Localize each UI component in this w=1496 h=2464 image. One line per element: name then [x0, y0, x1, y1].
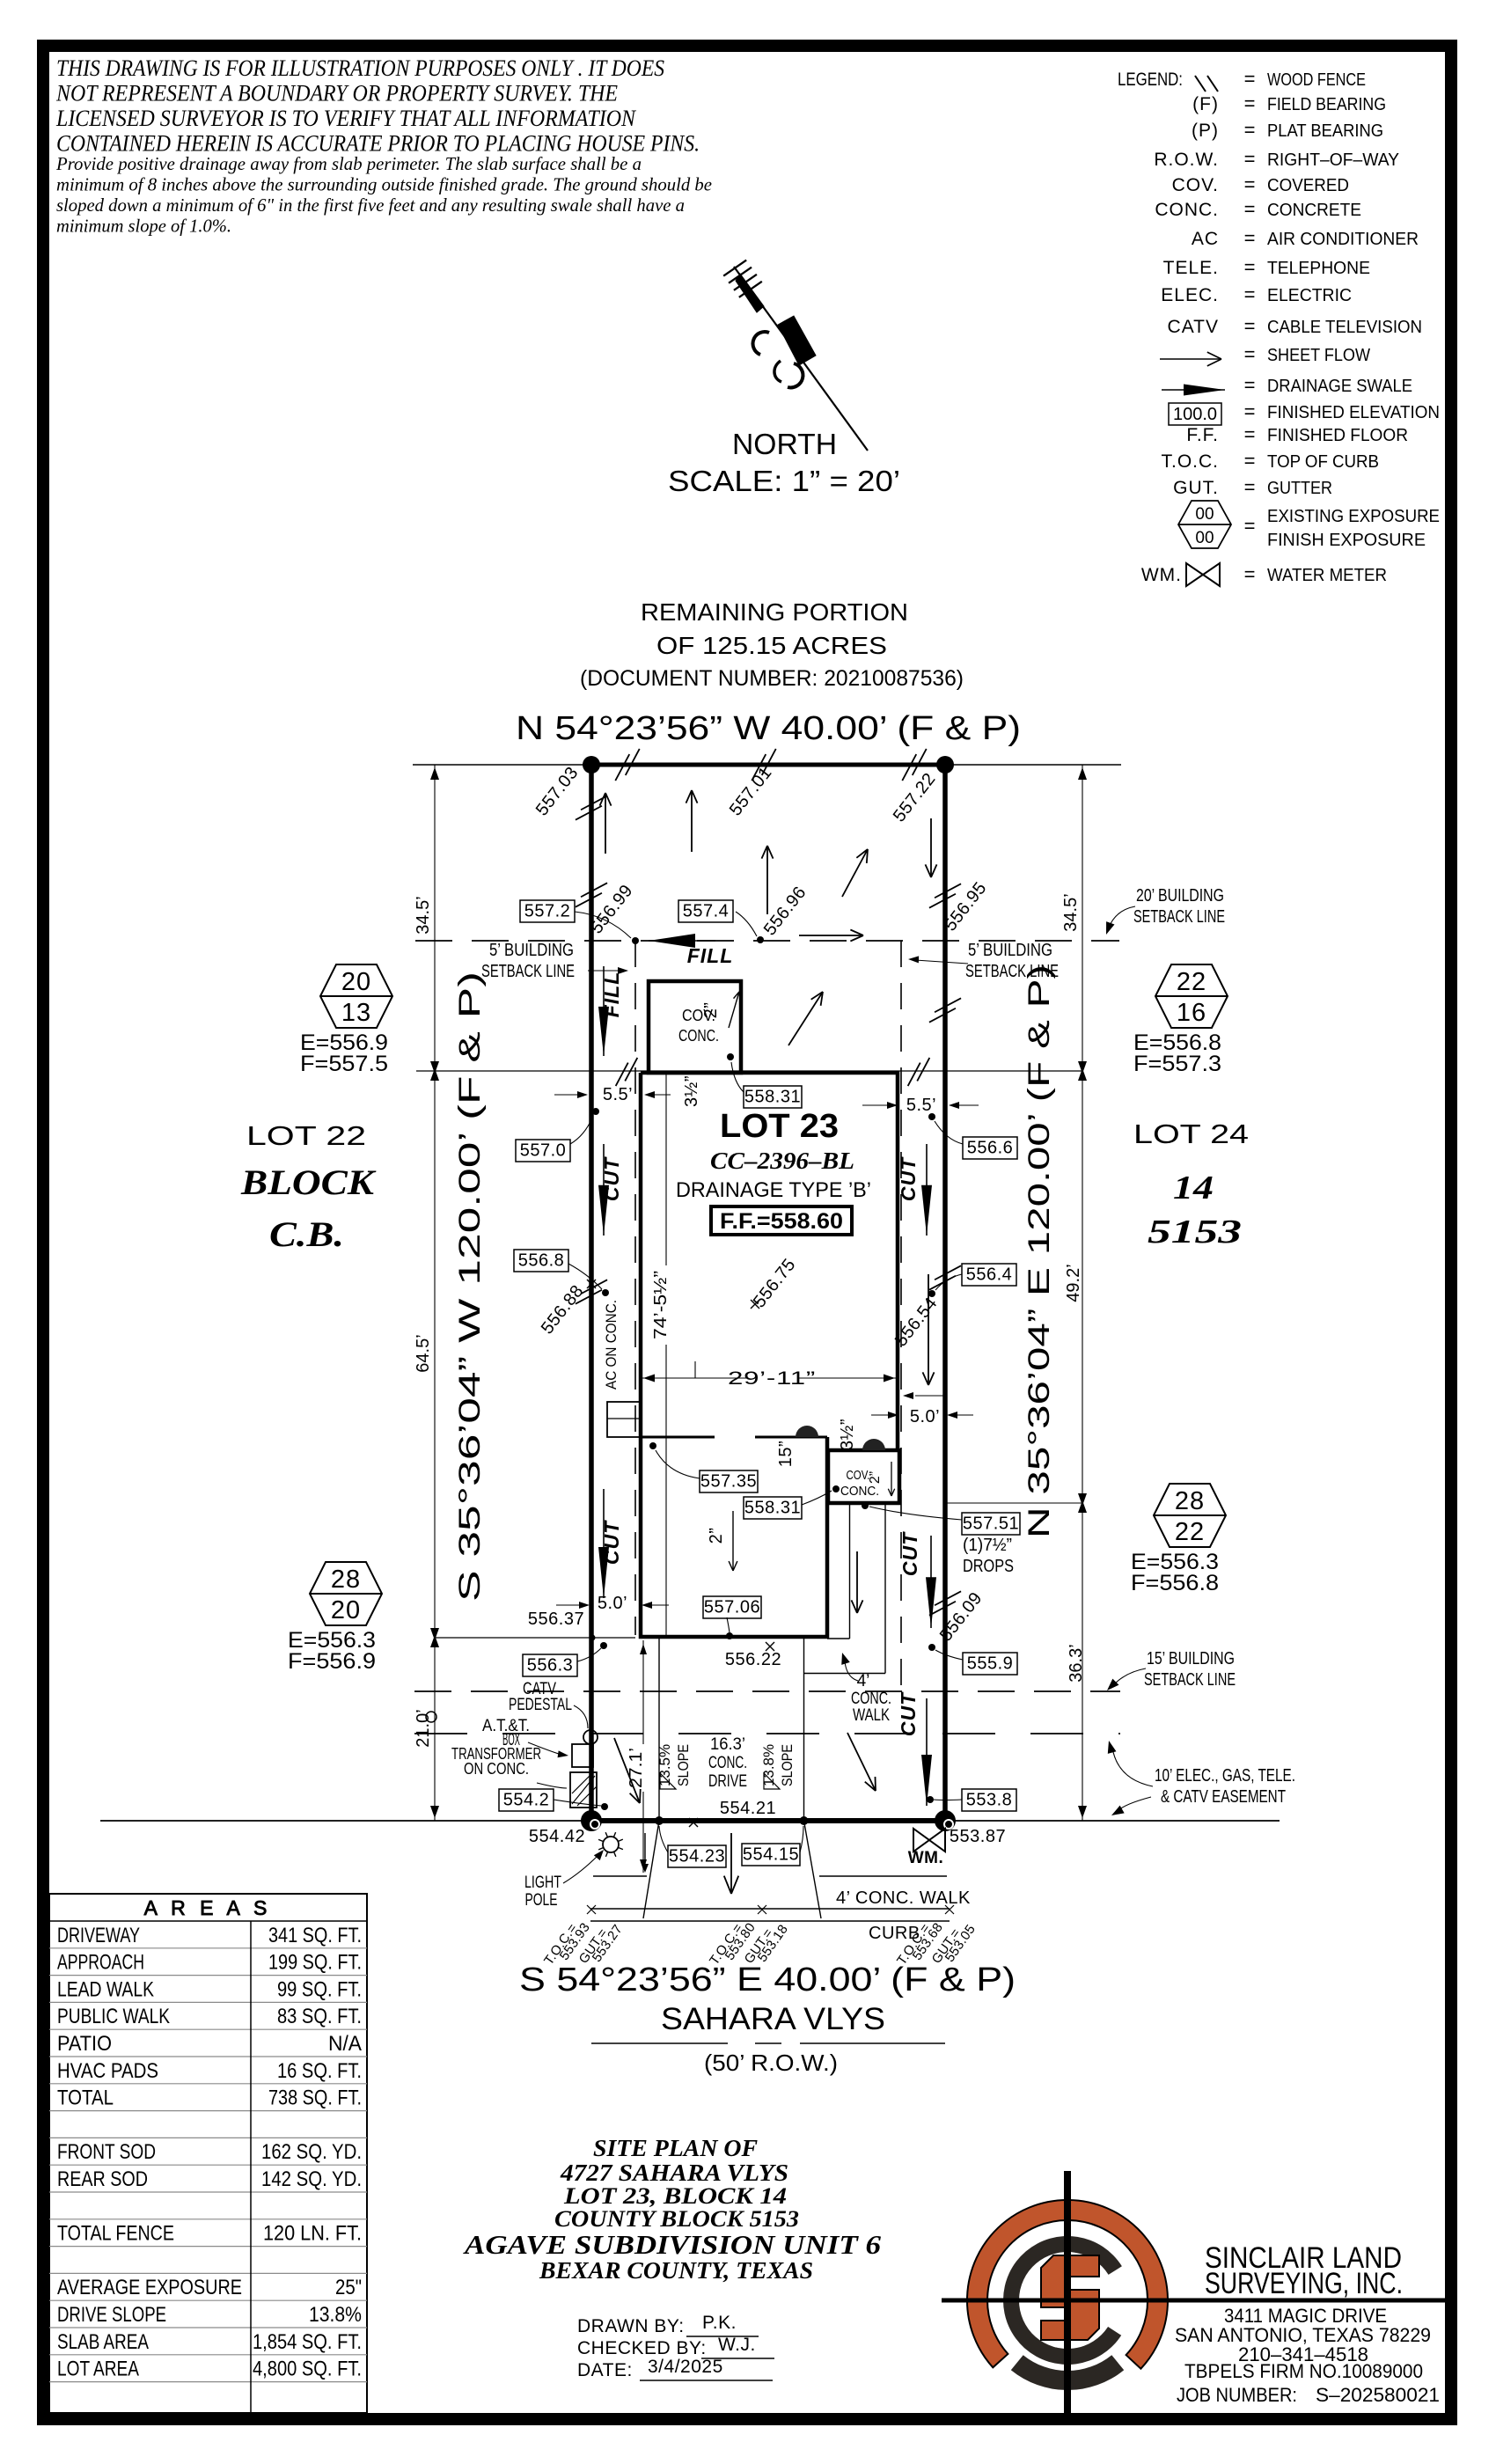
svg-text:LEAD WALK: LEAD WALK [57, 1977, 154, 2001]
svg-text:NORTH: NORTH [732, 428, 837, 460]
svg-text:WALK: WALK [853, 1706, 890, 1725]
svg-text:CUT: CUT [898, 1531, 921, 1576]
svg-text:5.0’: 5.0’ [598, 1594, 627, 1613]
svg-text:F=557.3: F=557.3 [1133, 1052, 1221, 1076]
svg-text:16.3’: 16.3’ [710, 1735, 745, 1754]
svg-text:AGAVE SUBDIVISION UNIT 6: AGAVE SUBDIVISION UNIT 6 [463, 2229, 882, 2260]
svg-text:556.4: 556.4 [966, 1265, 1013, 1285]
svg-text:=: = [1244, 315, 1256, 337]
svg-text:PEDESTAL: PEDESTAL [509, 1696, 572, 1714]
svg-text:TBPELS FIRM NO.10089000: TBPELS FIRM NO.10089000 [1184, 2360, 1423, 2382]
svg-text:=: = [1244, 515, 1256, 537]
svg-text:GUTTER: GUTTER [1267, 478, 1332, 498]
svg-text:558.31: 558.31 [744, 1088, 801, 1107]
svg-text:ELEC.: ELEC. [1161, 285, 1219, 305]
svg-text:13: 13 [341, 999, 371, 1027]
svg-text:BEXAR COUNTY, TEXAS: BEXAR COUNTY, TEXAS [539, 2257, 813, 2284]
svg-text:CONC.: CONC. [840, 1484, 879, 1499]
svg-text:=: = [1244, 92, 1256, 114]
svg-text:13.8%: 13.8% [309, 2303, 362, 2327]
svg-text:00: 00 [1195, 529, 1214, 547]
svg-text:POLE: POLE [525, 1891, 558, 1910]
svg-text:=: = [1244, 374, 1256, 396]
svg-text:557.35: 557.35 [700, 1472, 757, 1492]
svg-text:GUT.: GUT. [1173, 478, 1219, 498]
svg-text:28: 28 [331, 1566, 361, 1594]
svg-text:100.0: 100.0 [1173, 405, 1217, 424]
svg-text:LIGHT: LIGHT [524, 1874, 561, 1892]
svg-text:SURVEYING, INC.: SURVEYING, INC. [1205, 2267, 1403, 2300]
svg-text:554.42: 554.42 [529, 1827, 585, 1846]
svg-text:C.B.: C.B. [269, 1214, 344, 1254]
svg-text:SAHARA VLYS: SAHARA VLYS [661, 2002, 885, 2036]
svg-text:28: 28 [1175, 1487, 1205, 1515]
svg-text:LICENSED SURVEYOR IS TO VERIFY: LICENSED SURVEYOR IS TO VERIFY THAT ALL … [55, 106, 636, 131]
svg-text:13.8%: 13.8% [760, 1744, 777, 1786]
svg-text:& CATV EASEMENT: & CATV EASEMENT [1161, 1787, 1286, 1807]
svg-text:4,800 SQ. FT.: 4,800 SQ. FT. [253, 2358, 362, 2381]
svg-text:2”: 2” [868, 1471, 883, 1484]
svg-text:=: = [1244, 119, 1256, 141]
svg-text:556.22: 556.22 [725, 1650, 781, 1669]
svg-text:=: = [1244, 450, 1256, 472]
svg-text:=: = [1244, 283, 1256, 305]
svg-text:557.06: 557.06 [704, 1598, 760, 1617]
svg-text:AC ON CONC.: AC ON CONC. [603, 1300, 620, 1390]
svg-text:554.15: 554.15 [743, 1845, 799, 1865]
svg-text:2”: 2” [707, 1528, 726, 1544]
svg-text:COUNTY BLOCK 5153: COUNTY BLOCK 5153 [554, 2206, 799, 2232]
svg-text:74’-5½”: 74’-5½” [651, 1271, 671, 1339]
svg-text:556.3: 556.3 [527, 1656, 574, 1676]
svg-text:N 54°23’56” W 40.00’ (F & P): N 54°23’56” W 40.00’ (F & P) [516, 710, 1021, 747]
svg-text:16: 16 [1177, 999, 1206, 1027]
svg-text:DRAINAGE SWALE: DRAINAGE SWALE [1267, 376, 1412, 396]
svg-text:15”: 15” [776, 1441, 796, 1467]
svg-text:COV.: COV. [847, 1468, 870, 1483]
svg-text:4’ CONC. WALK: 4’ CONC. WALK [836, 1888, 971, 1908]
svg-text:F=557.5: F=557.5 [300, 1052, 388, 1076]
svg-text:F.F.: F.F. [1186, 425, 1219, 445]
svg-text:LEGEND:: LEGEND: [1118, 70, 1183, 90]
svg-text:SETBACK LINE: SETBACK LINE [1133, 907, 1225, 927]
svg-text:N 35°36’04” E 120.00’ (F &: N 35°36’04” E 120.00’ (F & P) [1023, 964, 1056, 1538]
svg-text:minimum slope of 1.0%.: minimum slope of 1.0%. [56, 216, 231, 237]
svg-text:27.1’: 27.1’ [627, 1748, 646, 1788]
svg-text:FILL: FILL [687, 944, 734, 967]
svg-text:FILL: FILL [600, 972, 623, 1018]
svg-text:(DOCUMENT NUMBER: 20210087536): (DOCUMENT NUMBER: 20210087536) [580, 666, 964, 691]
svg-text:341 SQ. FT.: 341 SQ. FT. [268, 1924, 362, 1947]
svg-text:N/A: N/A [328, 2032, 362, 2056]
svg-text:=: = [1244, 343, 1256, 365]
svg-text:15’ BUILDING: 15’ BUILDING [1147, 1649, 1235, 1668]
svg-text:PATIO: PATIO [57, 2032, 112, 2056]
svg-text:SETBACK LINE: SETBACK LINE [481, 962, 575, 981]
svg-text:557.0: 557.0 [520, 1141, 567, 1161]
svg-text:APPROACH: APPROACH [57, 1951, 144, 1975]
svg-text:554.23: 554.23 [669, 1847, 725, 1866]
svg-text:DRIVE SLOPE: DRIVE SLOPE [57, 2303, 166, 2327]
svg-text:=: = [1244, 256, 1256, 278]
svg-text:553.8: 553.8 [966, 1791, 1013, 1810]
svg-text:=: = [1244, 173, 1256, 195]
svg-text:34.5’: 34.5’ [414, 896, 433, 934]
svg-text:CONCRETE: CONCRETE [1267, 200, 1361, 220]
svg-text:(F): (F) [1192, 94, 1219, 114]
svg-text:FINISHED FLOOR: FINISHED FLOOR [1267, 425, 1408, 445]
svg-text:AC: AC [1192, 229, 1219, 249]
svg-text:558.31: 558.31 [744, 1499, 801, 1518]
svg-text:120 LN. FT.: 120 LN. FT. [263, 2222, 362, 2246]
svg-text:5153: 5153 [1148, 1214, 1242, 1250]
svg-text:SETBACK LINE: SETBACK LINE [1144, 1670, 1236, 1690]
svg-text:WM.: WM. [1141, 565, 1182, 585]
svg-text:553.87: 553.87 [950, 1827, 1006, 1846]
svg-text:557.51: 557.51 [963, 1514, 1019, 1534]
svg-text:=: = [1244, 68, 1256, 90]
svg-text:556.8: 556.8 [518, 1251, 565, 1271]
svg-text:557.4: 557.4 [683, 902, 730, 921]
svg-text:F=556.9: F=556.9 [288, 1649, 376, 1674]
svg-text:sloped down a minimum of 6" in: sloped down a minimum of 6" in the first… [56, 194, 685, 216]
svg-text:S–202580021: S–202580021 [1316, 2384, 1440, 2406]
svg-text:10’ ELEC., GAS, TELE.: 10’ ELEC., GAS, TELE. [1155, 1766, 1295, 1786]
svg-text:FRONT SOD: FRONT SOD [57, 2140, 156, 2164]
svg-text:W.J.: W.J. [718, 2335, 756, 2355]
svg-text:(P): (P) [1192, 121, 1219, 141]
svg-text:T.O.C.: T.O.C. [1161, 451, 1219, 472]
svg-text:3½”: 3½” [838, 1419, 857, 1450]
svg-text:13.5%: 13.5% [656, 1744, 673, 1786]
svg-text:=: = [1244, 148, 1256, 170]
svg-text:CATV: CATV [1168, 317, 1219, 337]
svg-text:DRAWN BY:: DRAWN BY: [577, 2316, 685, 2336]
svg-text:S 35°36’04” W 120.00’ (F &: S 35°36’04” W 120.00’ (F & P) [453, 972, 487, 1602]
svg-text:WATER METER: WATER METER [1267, 565, 1387, 585]
svg-text:=: = [1244, 476, 1256, 498]
svg-text:20: 20 [331, 1596, 361, 1624]
svg-text:00: 00 [1195, 505, 1214, 524]
svg-text:CUT: CUT [600, 1520, 623, 1565]
svg-text:COV.: COV. [682, 1007, 715, 1024]
svg-text:Provide positive drainage away: Provide positive drainage away from slab… [55, 153, 642, 174]
svg-text:5.0’: 5.0’ [910, 1407, 940, 1426]
svg-text:LOT 23: LOT 23 [720, 1108, 839, 1145]
svg-text:WM.: WM. [908, 1849, 944, 1867]
svg-text:SHEET FLOW: SHEET FLOW [1267, 345, 1371, 365]
svg-text:LOT 23, BLOCK 14: LOT 23, BLOCK 14 [563, 2183, 787, 2209]
svg-text:738 SQ. FT.: 738 SQ. FT. [268, 2086, 362, 2110]
svg-text:DROPS: DROPS [963, 1557, 1014, 1576]
svg-text:3/4/2025: 3/4/2025 [648, 2357, 723, 2377]
svg-text:F.F.=558.60: F.F.=558.60 [720, 1209, 843, 1234]
svg-text:F=556.8: F=556.8 [1131, 1571, 1219, 1595]
svg-text:minimum of 8 inches above the: minimum of 8 inches above the surroundin… [56, 174, 712, 195]
svg-text:20’ BUILDING: 20’ BUILDING [1136, 886, 1224, 906]
svg-text:WOOD FENCE: WOOD FENCE [1267, 70, 1366, 90]
svg-text:555.9: 555.9 [967, 1654, 1014, 1674]
svg-text:COVERED: COVERED [1267, 175, 1349, 195]
svg-text:CONC.: CONC. [851, 1690, 891, 1708]
svg-text:THIS DRAWING IS FOR ILLUSTRATI: THIS DRAWING IS FOR ILLUSTRATION PURPOSE… [56, 55, 664, 81]
svg-text:CONC.: CONC. [708, 1754, 747, 1772]
svg-text:554.2: 554.2 [503, 1791, 550, 1810]
svg-text:HVAC PADS: HVAC PADS [57, 2059, 158, 2083]
svg-text:SLOPE: SLOPE [675, 1744, 692, 1786]
svg-text:36.3’: 36.3’ [1067, 1644, 1086, 1682]
svg-text:ON CONC.: ON CONC. [464, 1760, 529, 1778]
svg-text:REMAINING PORTION: REMAINING PORTION [641, 598, 908, 626]
svg-text:(50’ R.O.W.): (50’ R.O.W.) [704, 2050, 838, 2076]
svg-text:5.5’: 5.5’ [603, 1085, 633, 1104]
svg-text:556.6: 556.6 [967, 1139, 1014, 1158]
svg-text:CABLE TELEVISION: CABLE TELEVISION [1267, 317, 1422, 337]
svg-text:=: = [1244, 227, 1256, 249]
svg-text:CC–2396–BL: CC–2396–BL [710, 1148, 854, 1174]
svg-text:PUBLIC WALK: PUBLIC WALK [57, 2005, 170, 2028]
svg-text:TOTAL FENCE: TOTAL FENCE [57, 2222, 174, 2246]
svg-text:LOT 22: LOT 22 [246, 1120, 366, 1151]
svg-text:BLOCK: BLOCK [240, 1162, 377, 1202]
svg-text:DRAINAGE TYPE ’B’: DRAINAGE TYPE ’B’ [676, 1178, 871, 1202]
svg-text:=: = [1244, 198, 1256, 220]
svg-text:CONC.: CONC. [1155, 200, 1219, 220]
svg-text:SLOPE: SLOPE [779, 1744, 796, 1786]
svg-text:49.2’: 49.2’ [1064, 1264, 1083, 1302]
svg-text:CUT: CUT [897, 1691, 920, 1736]
svg-text:=: = [1244, 400, 1256, 422]
svg-text:142 SQ. YD.: 142 SQ. YD. [261, 2167, 362, 2191]
svg-text:34.5’: 34.5’ [1061, 893, 1081, 931]
svg-text:PLAT BEARING: PLAT BEARING [1267, 121, 1383, 141]
svg-text:FINISH EXPOSURE: FINISH EXPOSURE [1267, 530, 1426, 550]
svg-text:SITE PLAN OF: SITE PLAN OF [593, 2135, 758, 2161]
svg-text:EXISTING EXPOSURE: EXISTING EXPOSURE [1267, 506, 1440, 526]
svg-text:(1)7½”: (1)7½” [963, 1536, 1012, 1555]
svg-text:=: = [1244, 563, 1256, 585]
svg-text:22: 22 [1177, 968, 1206, 996]
svg-text:CUT: CUT [600, 1156, 623, 1201]
svg-text:83 SQ. FT.: 83 SQ. FT. [277, 2005, 362, 2028]
svg-text:162 SQ. YD.: 162 SQ. YD. [261, 2140, 362, 2164]
svg-text:4727 SAHARA VLYS: 4727 SAHARA VLYS [560, 2160, 788, 2186]
svg-text:REAR SOD: REAR SOD [57, 2167, 148, 2191]
svg-text:3½”: 3½” [682, 1075, 701, 1107]
svg-text:DRIVEWAY: DRIVEWAY [57, 1924, 140, 1947]
svg-text:NOT REPRESENT A BOUNDARY OR PR: NOT REPRESENT A BOUNDARY OR PROPERTY SUR… [55, 81, 618, 106]
svg-text:21.0’: 21.0’ [414, 1709, 433, 1747]
svg-text:TOP OF CURB: TOP OF CURB [1267, 451, 1379, 472]
svg-text:5’ BUILDING: 5’ BUILDING [968, 941, 1052, 960]
svg-text:557.2: 557.2 [524, 902, 571, 921]
svg-text:CHECKED BY:: CHECKED BY: [577, 2338, 707, 2358]
svg-text:AIR CONDITIONER: AIR CONDITIONER [1267, 229, 1419, 249]
svg-text:22: 22 [1175, 1518, 1205, 1546]
svg-text:AVERAGE EXPOSURE: AVERAGE EXPOSURE [57, 2276, 242, 2299]
svg-text:556.37: 556.37 [528, 1610, 584, 1629]
svg-text:DRIVE: DRIVE [708, 1772, 747, 1791]
svg-text:20: 20 [341, 968, 371, 996]
svg-text:5.5’: 5.5’ [906, 1096, 936, 1115]
svg-text:5’ BUILDING: 5’ BUILDING [489, 941, 574, 960]
svg-text:S 54°23’56” E 40.00’ (F & P): S 54°23’56” E 40.00’ (F & P) [519, 1962, 1016, 1998]
svg-text:SETBACK LINE: SETBACK LINE [965, 962, 1059, 981]
svg-text:14: 14 [1173, 1170, 1214, 1206]
svg-text:FINISHED ELEVATION: FINISHED ELEVATION [1267, 402, 1440, 422]
svg-text:4’: 4’ [857, 1672, 870, 1690]
svg-text:A R E A S: A R E A S [144, 1896, 272, 1919]
svg-text:1,854 SQ. FT.: 1,854 SQ. FT. [253, 2330, 362, 2354]
svg-text:199 SQ. FT.: 199 SQ. FT. [268, 1951, 362, 1975]
svg-text:DATE:: DATE: [577, 2360, 633, 2380]
svg-text:16 SQ. FT.: 16 SQ. FT. [277, 2059, 362, 2083]
svg-text:64.5’: 64.5’ [414, 1334, 433, 1372]
svg-text:P.K.: P.K. [702, 2313, 737, 2333]
svg-text:TELE.: TELE. [1163, 258, 1219, 278]
svg-text:29’-11”: 29’-11” [728, 1368, 816, 1389]
svg-text:R.O.W.: R.O.W. [1154, 150, 1219, 170]
svg-text:SLAB AREA: SLAB AREA [57, 2330, 149, 2354]
svg-text:JOB NUMBER:: JOB NUMBER: [1177, 2384, 1297, 2406]
svg-text:=: = [1244, 423, 1256, 445]
svg-text:TELEPHONE: TELEPHONE [1267, 258, 1370, 278]
svg-text:SCALE: 1” = 20’: SCALE: 1” = 20’ [668, 465, 900, 497]
svg-text:COV.: COV. [1172, 175, 1219, 195]
svg-text:CUT: CUT [897, 1156, 920, 1201]
svg-text:99 SQ. FT.: 99 SQ. FT. [277, 1977, 362, 2001]
svg-text:25": 25" [335, 2276, 362, 2299]
svg-text:CONC.: CONC. [678, 1027, 719, 1045]
svg-text:ELECTRIC: ELECTRIC [1267, 285, 1352, 305]
svg-text:OF 125.15 ACRES: OF 125.15 ACRES [656, 632, 887, 659]
svg-text:FIELD BEARING: FIELD BEARING [1267, 94, 1386, 114]
svg-text:LOT 24: LOT 24 [1133, 1118, 1249, 1149]
svg-text:LOT AREA: LOT AREA [57, 2358, 139, 2381]
svg-text:554.21: 554.21 [720, 1799, 776, 1818]
svg-text:TOTAL: TOTAL [57, 2086, 114, 2110]
svg-text:RIGHT–OF–WAY: RIGHT–OF–WAY [1267, 150, 1399, 170]
